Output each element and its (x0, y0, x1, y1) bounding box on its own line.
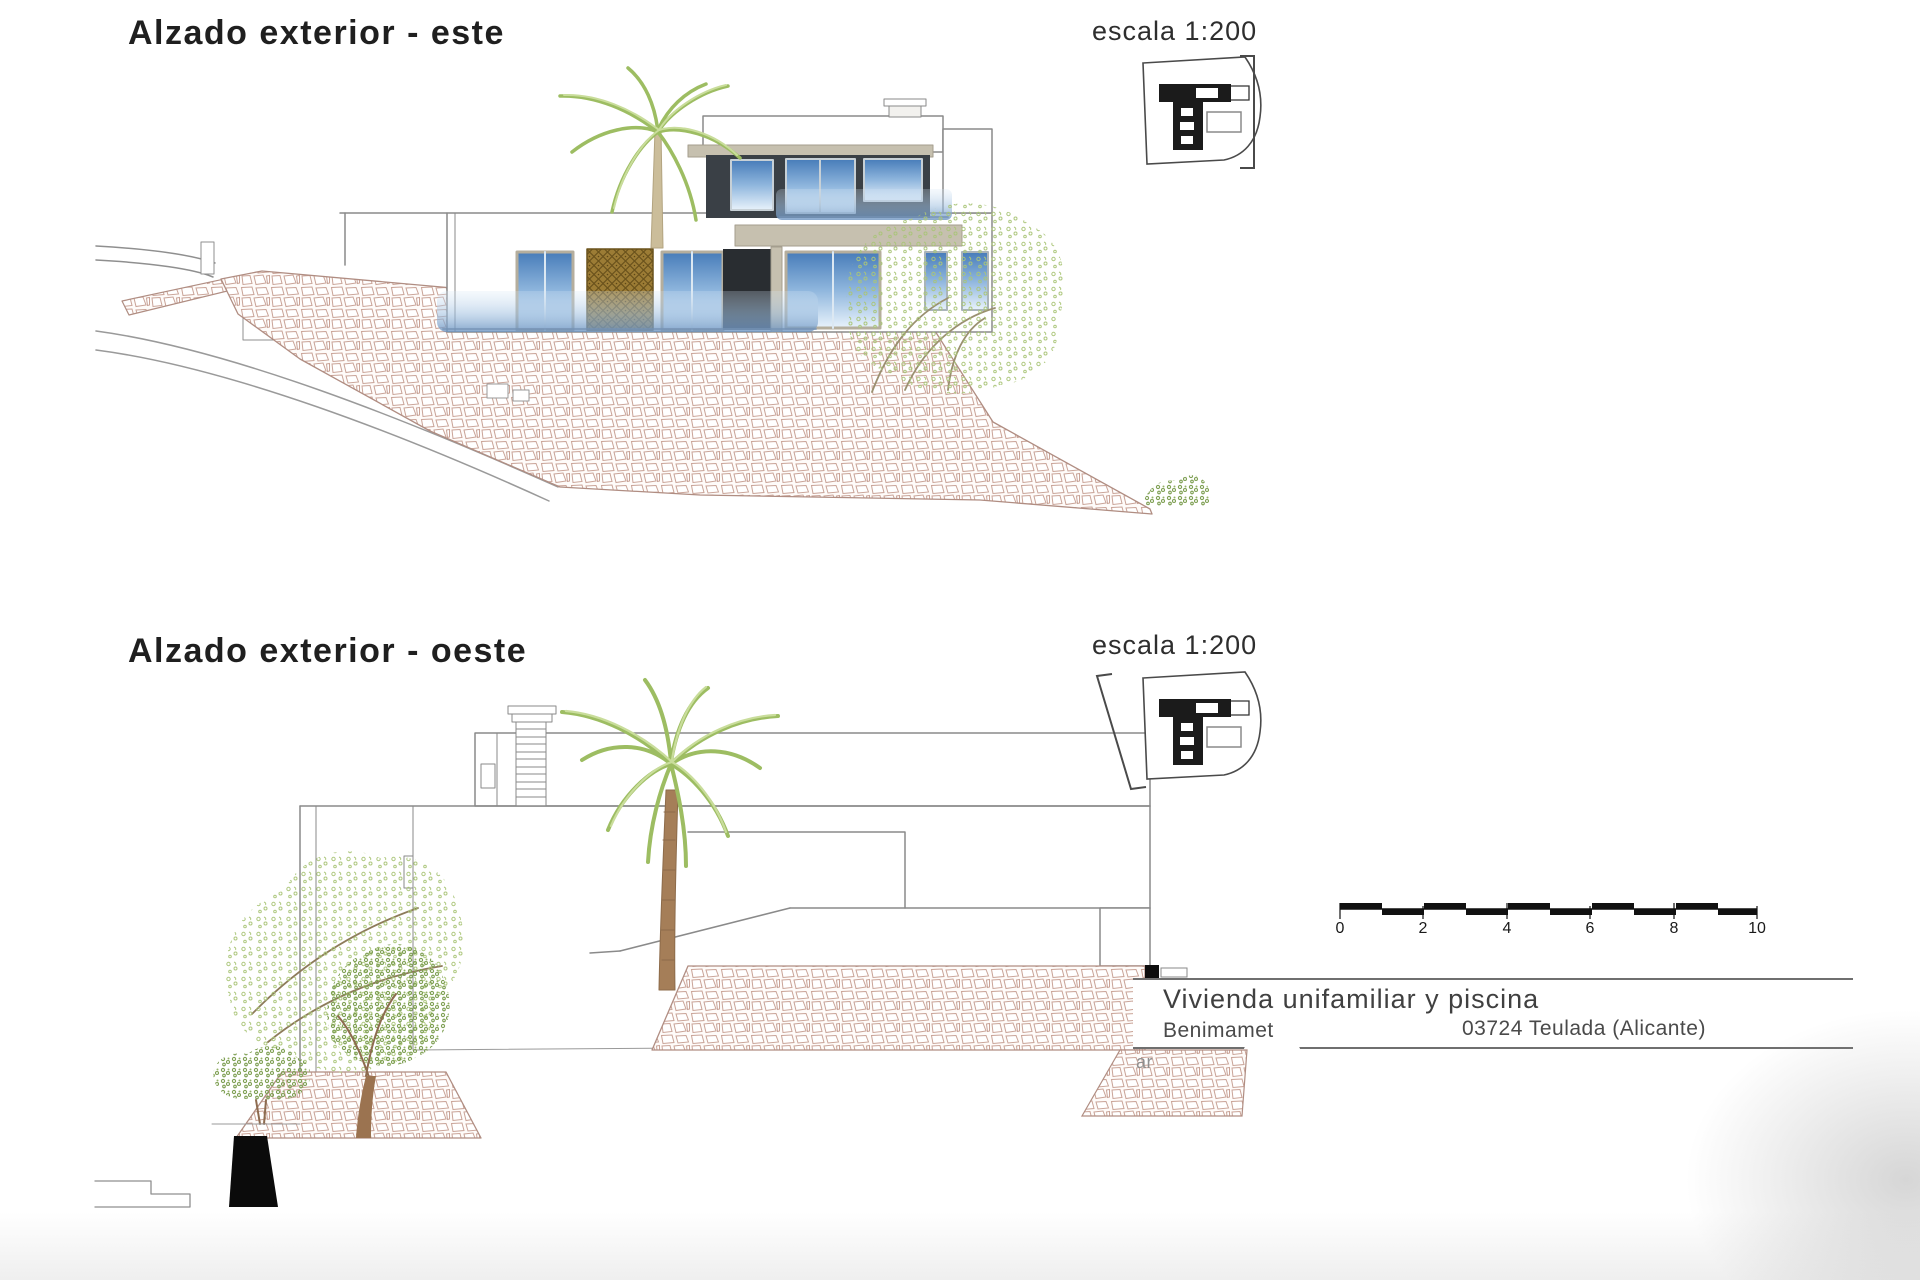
oeste-scale-label: escala 1:200 (1092, 630, 1257, 661)
palm-tree-oeste (562, 680, 778, 990)
title-block-municipality: Benimamet (1163, 1019, 1274, 1043)
tree-este (847, 203, 1065, 394)
drawing-sheet: Alzado exterior - este escala 1:200 Alza… (0, 0, 1920, 1280)
scale-bar-graphic (1340, 903, 1757, 919)
scale-tick-0: 0 (1323, 920, 1357, 938)
scale-tick-4: 4 (1490, 920, 1524, 938)
oeste-elevation-drawing (95, 680, 1150, 1207)
corner-shading (1686, 1010, 1920, 1280)
scale-tick-2: 2 (1406, 920, 1440, 938)
oeste-panel-title: Alzado exterior - oeste (128, 632, 527, 671)
este-scale-label: escala 1:200 (1092, 16, 1257, 47)
este-panel-title: Alzado exterior - este (128, 14, 505, 53)
title-block-watermark: ar (1136, 1052, 1153, 1073)
scale-tick-6: 6 (1573, 920, 1607, 938)
title-block-project: Vivienda unifamiliar y piscina (1163, 984, 1539, 1015)
scale-tick-10: 10 (1740, 920, 1774, 938)
keyplan-este (1143, 56, 1261, 168)
este-elevation-drawing (96, 68, 1211, 514)
bottom-shading (0, 1212, 1920, 1280)
section-marker (1145, 965, 1159, 978)
title-block-address: 03724 Teulada (Alicante) (1462, 1017, 1706, 1041)
shrub-este (1142, 475, 1211, 507)
scale-tick-8: 8 (1657, 920, 1691, 938)
